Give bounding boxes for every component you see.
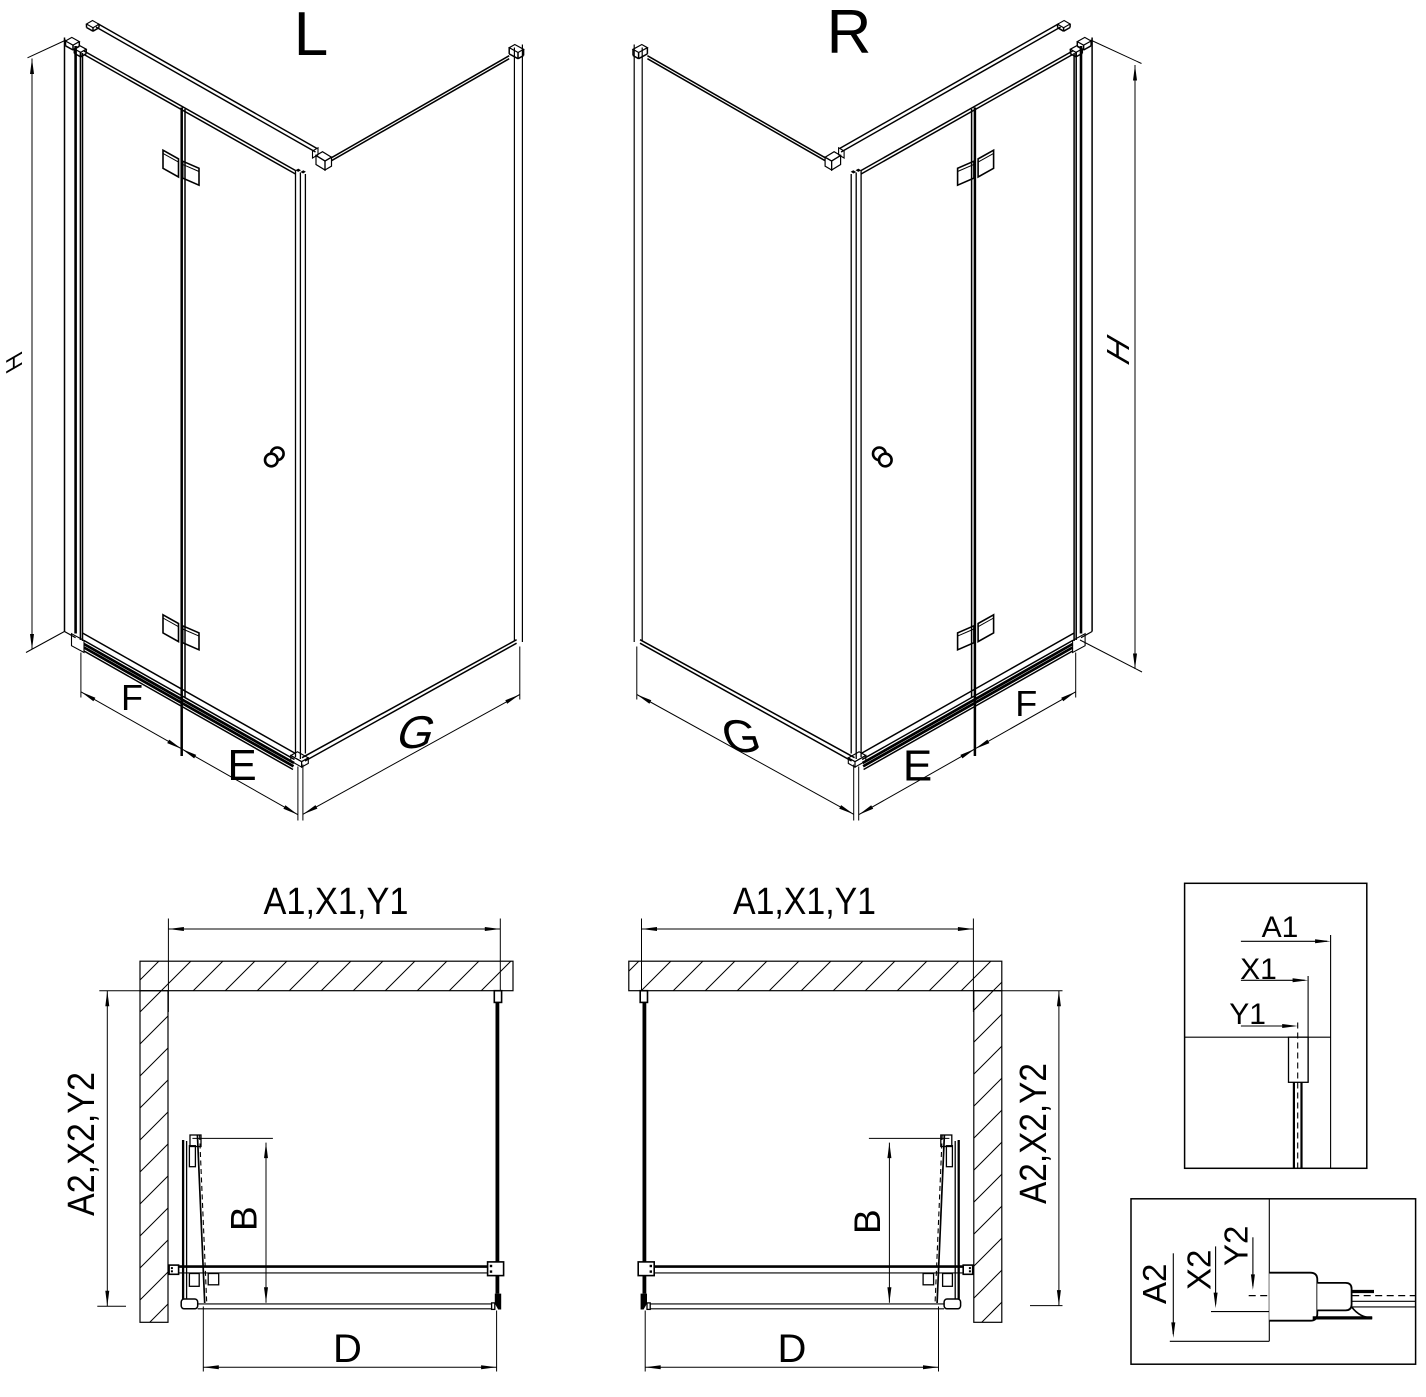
svg-text:X1: X1	[1240, 953, 1277, 986]
svg-text:D: D	[333, 1327, 362, 1371]
svg-text:B: B	[847, 1209, 888, 1234]
svg-text:F: F	[121, 677, 143, 718]
svg-text:A1: A1	[1262, 911, 1299, 944]
svg-text:A1,X1,Y1: A1,X1,Y1	[264, 881, 409, 923]
svg-text:Y1: Y1	[1229, 998, 1266, 1031]
svg-text:E: E	[227, 741, 256, 790]
svg-text:X2: X2	[1181, 1250, 1218, 1290]
svg-text:L: L	[294, 0, 328, 69]
svg-text:R: R	[827, 0, 872, 67]
svg-text:B: B	[224, 1206, 265, 1231]
svg-text:A2,X2,Y2: A2,X2,Y2	[61, 1072, 103, 1216]
svg-text:F: F	[1015, 683, 1037, 724]
svg-text:A1,X1,Y1: A1,X1,Y1	[733, 881, 876, 923]
svg-text:D: D	[778, 1327, 807, 1371]
svg-text:Y2: Y2	[1218, 1226, 1255, 1266]
svg-text:A2,X2,Y2: A2,X2,Y2	[1013, 1063, 1055, 1204]
svg-text:E: E	[903, 742, 932, 791]
svg-text:A2: A2	[1136, 1264, 1173, 1304]
